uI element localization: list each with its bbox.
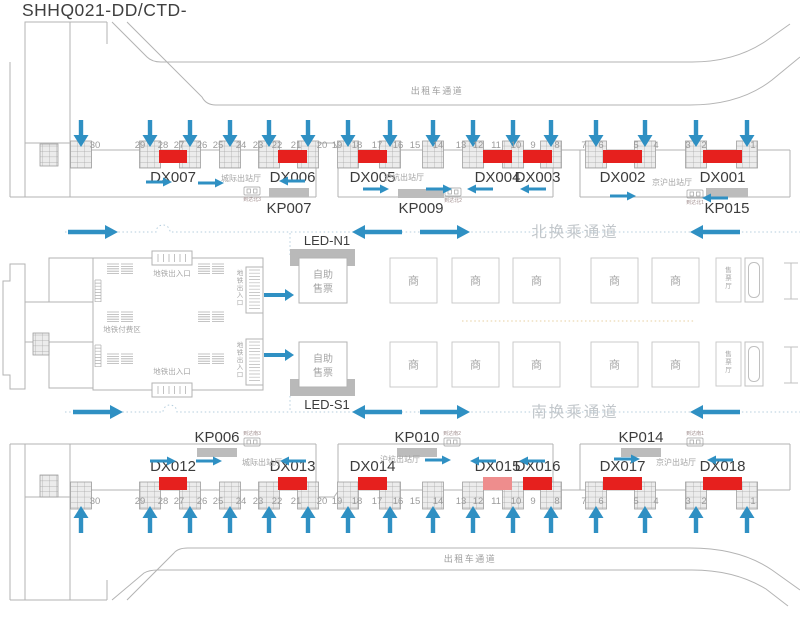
kp-panel-KP015 <box>706 188 748 197</box>
metro-exit-arrow <box>264 289 294 301</box>
char: 厅 <box>725 366 732 374</box>
panel-label-DX004: DX004 <box>475 169 521 186</box>
kp-label-KP010: KP010 <box>394 429 439 446</box>
arrow-stem <box>306 517 310 533</box>
up-arrow <box>466 506 481 533</box>
gate-number-top: 22 <box>272 140 283 151</box>
exit-hall-label: 沪杭出站厅 <box>380 454 420 464</box>
arrow-stem <box>79 517 83 533</box>
arrow-stem <box>431 120 435 136</box>
arrow-stem <box>420 410 457 415</box>
ad-panel-DX016 <box>523 477 552 490</box>
taxi-lane-top-inner <box>127 22 800 105</box>
led-s1-label: LED-S1 <box>304 397 350 412</box>
ladder-hatch <box>95 280 101 302</box>
gate-number-top: 30 <box>90 140 101 151</box>
gate-number-top: 26 <box>197 140 208 151</box>
gate-number-bottom: 20 <box>317 496 328 507</box>
char: 口 <box>237 371 244 379</box>
gate-number-bottom: 12 <box>473 496 484 507</box>
gate-number-top: 13 <box>456 140 467 151</box>
kp-label-KP007: KP007 <box>266 200 311 217</box>
metro-side-box-lower <box>246 339 263 385</box>
up-arrow <box>740 506 755 533</box>
arrow-stem <box>703 230 740 235</box>
gate-number-bottom: 7 <box>581 496 586 507</box>
gate-number-bottom: 22 <box>272 496 283 507</box>
arrow-stem <box>346 517 350 533</box>
left-exit-structure <box>10 444 107 600</box>
gate-number-bottom: 9 <box>530 496 535 507</box>
ad-panel-DX014 <box>358 477 387 490</box>
arrival-label: 到达南3 <box>243 430 261 437</box>
gate-number-top: 20 <box>317 140 328 151</box>
escalator-box-row1 <box>745 258 763 302</box>
arrival-label: 到达南2 <box>443 430 461 437</box>
up-arrow <box>506 506 521 533</box>
arrow-stem <box>511 120 515 136</box>
up-arrow <box>143 506 158 533</box>
passage-arrow <box>690 225 740 239</box>
arrow-stem <box>148 120 152 136</box>
metro-side-box-upper <box>246 267 263 313</box>
gate-number-bottom: 29 <box>135 496 146 507</box>
arrow-stem <box>79 120 83 136</box>
taxi-lane-bottom-outer <box>112 570 788 606</box>
arrow-head <box>690 405 703 419</box>
led-n1-label: LED-N1 <box>304 233 350 248</box>
up-arrow <box>383 506 398 533</box>
arrow-head <box>110 405 123 419</box>
passage-arrow <box>420 405 470 419</box>
shop-label: 商 <box>670 358 681 372</box>
gate-number-top: 5 <box>633 140 638 151</box>
arrow-head <box>213 457 222 466</box>
exit-hall-label: 城际出站厅 <box>221 173 261 183</box>
char: 入 <box>237 292 244 299</box>
gate-number-top: 8 <box>554 140 559 151</box>
ticket-hall-label: 售票厅 <box>725 265 732 290</box>
shop-label: 商 <box>470 358 481 372</box>
arrow-head <box>457 225 470 239</box>
north-passage-label: 北换乘通道 <box>531 223 619 241</box>
char: 售 <box>725 265 732 274</box>
char: 入 <box>237 364 244 371</box>
char: 铁 <box>237 275 244 284</box>
arrow-stem <box>716 459 733 462</box>
escalator-hatch <box>107 354 133 364</box>
ladder-hatch <box>95 345 101 367</box>
gate-number-top: 3 <box>685 140 690 151</box>
gate-number-top: 27 <box>174 140 185 151</box>
gate-number-top: 29 <box>135 140 146 151</box>
gate-number-top: 6 <box>598 140 603 151</box>
exit-hall-label: 京沪出站厅 <box>652 177 692 187</box>
arrow-head <box>457 405 470 419</box>
gate-number-top: 19 <box>332 140 343 151</box>
flow-arrow <box>196 457 222 466</box>
exit-hall-label: 沪杭出站厅 <box>384 172 424 182</box>
char: 票 <box>725 358 732 366</box>
gate-number-bottom: 6 <box>598 496 603 507</box>
arrow-stem <box>614 458 631 461</box>
shop-label: 商 <box>470 274 481 288</box>
ad-panel-DX005 <box>358 150 387 163</box>
gate-number-bottom: 30 <box>90 496 101 507</box>
arrow-head <box>105 225 118 239</box>
gate-number-bottom: 28 <box>158 496 169 507</box>
up-arrow <box>689 506 704 533</box>
ad-panel-DX003 <box>523 150 552 163</box>
metro-entrance-top-label: 地铁出入口 <box>153 268 191 278</box>
arrow-head <box>352 225 365 239</box>
arrow-stem <box>146 181 163 184</box>
char: 出 <box>237 355 244 364</box>
exit-hall-label: 京沪出站厅 <box>656 457 696 467</box>
metro-entrance-side-label: 地铁出入口 <box>237 340 244 379</box>
passage-arrow <box>73 405 123 419</box>
arrow-stem <box>643 120 647 136</box>
passage-arrow <box>352 405 402 419</box>
arrow-stem <box>264 353 285 357</box>
gate-number-bottom: 5 <box>633 496 638 507</box>
char: 口 <box>237 299 244 307</box>
gate-number-bottom: 15 <box>410 496 421 507</box>
gate-number-top: 28 <box>158 140 169 151</box>
kp-panel-KP014 <box>621 448 661 457</box>
selfservice-south-line2: 售票 <box>313 366 333 379</box>
gate-number-top: 11 <box>491 140 501 151</box>
pillar <box>71 482 92 509</box>
arrow-stem <box>388 517 392 533</box>
up-arrow <box>589 506 604 533</box>
gate-number-top: 7 <box>581 140 586 151</box>
arrow-stem <box>365 410 402 415</box>
escalator-hatch <box>107 264 133 274</box>
gate-number-top: 23 <box>253 140 264 151</box>
arrival-point-icon <box>444 438 460 446</box>
arrow-head <box>627 192 636 201</box>
ad-panel-DX004 <box>483 150 512 163</box>
selfservice-north-line2: 售票 <box>313 282 333 295</box>
arrow-stem <box>549 517 553 533</box>
kp-label-KP006: KP006 <box>194 429 239 446</box>
arrow-stem <box>511 517 515 533</box>
gate-number-bottom: 16 <box>393 496 404 507</box>
gate-number-top: 15 <box>410 140 421 151</box>
arrow-stem <box>388 120 392 136</box>
gate-number-bottom: 1 <box>750 496 755 507</box>
arrow-stem <box>549 120 553 136</box>
ad-panel-DX018 <box>703 477 742 490</box>
arrow-stem <box>346 120 350 136</box>
gate-number-bottom: 10 <box>511 496 522 507</box>
up-arrow <box>183 506 198 533</box>
ad-panel-DX013 <box>278 477 307 490</box>
arrow-stem <box>198 182 215 185</box>
arrival-label: 到达南1 <box>686 430 704 437</box>
arrow-stem <box>643 517 647 533</box>
gate-number-bottom: 27 <box>174 496 185 507</box>
arrow-stem <box>73 410 110 415</box>
arrow-stem <box>267 120 271 136</box>
arrow-stem <box>425 459 442 462</box>
station-floorplan: 3030292928282727262625252424232322222121… <box>0 0 800 617</box>
gate-number-top: 24 <box>236 140 247 151</box>
arrow-head <box>690 225 703 239</box>
arrow-stem <box>148 517 152 533</box>
up-arrow <box>638 506 653 533</box>
arrow-stem <box>188 120 192 136</box>
metro-entrance-bottom-label: 地铁出入口 <box>153 366 191 376</box>
gate-number-bottom: 8 <box>554 496 559 507</box>
ad-panel-DX002 <box>603 150 642 163</box>
right-edge-structures <box>784 263 798 383</box>
metro-room-upper <box>49 258 93 302</box>
ad-panel-DX017 <box>603 477 642 490</box>
up-arrow <box>544 506 559 533</box>
metro-exit-arrow <box>264 349 294 361</box>
ticket-hall-label: 售票厅 <box>725 349 732 374</box>
arrow-stem <box>479 460 496 463</box>
arrow-stem <box>610 195 627 198</box>
panel-label-DX003: DX003 <box>515 169 561 186</box>
ad-panel-DX007 <box>159 150 187 163</box>
up-arrow <box>301 506 316 533</box>
up-arrow <box>426 506 441 533</box>
gate-number-bottom: 14 <box>433 496 444 507</box>
gate-number-bottom: 24 <box>236 496 247 507</box>
arrival-point-icon <box>244 438 260 446</box>
arrow-stem <box>476 188 493 191</box>
gate-number-top: 18 <box>352 140 363 151</box>
gate-number-top: 12 <box>473 140 484 151</box>
arrow-head <box>442 456 451 465</box>
gate-number-top: 10 <box>511 140 522 151</box>
ad-panel-DX015 <box>483 477 512 490</box>
shop-label: 商 <box>408 274 419 288</box>
metro-paid-area-label: 地铁付费区 <box>103 324 141 334</box>
panel-label-DX006: DX006 <box>270 169 316 186</box>
char: 出 <box>237 283 244 292</box>
up-arrow <box>341 506 356 533</box>
arrival-label: 到达北3 <box>243 196 261 203</box>
shop-label: 商 <box>531 274 542 288</box>
passage-arrow <box>352 225 402 239</box>
arrow-stem <box>150 460 167 463</box>
gate-number-bottom: 11 <box>491 496 501 507</box>
kp-label-KP014: KP014 <box>618 429 663 446</box>
arrow-stem <box>471 120 475 136</box>
panel-label-DX001: DX001 <box>700 169 746 186</box>
arrow-head <box>352 405 365 419</box>
arrow-stem <box>188 517 192 533</box>
passage-arrow <box>420 225 470 239</box>
kp-label-KP009: KP009 <box>398 200 443 217</box>
char: 售 <box>725 349 732 358</box>
arrival-label: 到达北2 <box>444 197 462 204</box>
escalator-hatch <box>198 312 224 322</box>
shop-label: 商 <box>531 358 542 372</box>
arrow-stem <box>711 197 728 200</box>
char: 地 <box>237 268 244 277</box>
passage-arrow <box>68 225 118 239</box>
kp-label-KP015: KP015 <box>704 200 749 217</box>
selfservice-north-line1: 自助 <box>313 268 333 281</box>
taxi-lane-bottom-label: 出租车通道 <box>444 553 497 564</box>
gate-number-top: 21 <box>291 140 302 151</box>
gate-number-bottom: 17 <box>372 496 383 507</box>
char: 厅 <box>725 282 732 290</box>
arrival-label: 到达北1 <box>686 199 704 206</box>
gate-number-top: 17 <box>372 140 383 151</box>
arrow-stem <box>694 517 698 533</box>
arrow-stem <box>288 180 305 183</box>
gate-number-top: 9 <box>530 140 535 151</box>
arrow-stem <box>745 517 749 533</box>
kp-panel-KP006 <box>197 448 237 457</box>
arrow-stem <box>426 188 443 191</box>
ad-panel-DX006 <box>278 150 307 163</box>
arrow-head <box>285 349 294 361</box>
kp-panel-KP007 <box>269 188 309 197</box>
arrow-stem <box>289 460 306 463</box>
gate-number-top: 2 <box>701 140 706 151</box>
arrow-stem <box>264 293 285 297</box>
gate-number-bottom: 21 <box>291 496 302 507</box>
escalator-hatch <box>107 312 133 322</box>
arrow-stem <box>363 188 380 191</box>
escalator-hatch <box>198 264 224 274</box>
arrow-stem <box>471 517 475 533</box>
char: 铁 <box>237 347 244 356</box>
gate-number-bottom: 18 <box>352 496 363 507</box>
shop-label: 商 <box>670 274 681 288</box>
up-arrow <box>262 506 277 533</box>
metro-room-lower <box>49 342 93 388</box>
arrow-stem <box>68 230 105 235</box>
exit-hall-label: 城际出站厅 <box>242 457 282 467</box>
char: 票 <box>725 274 732 282</box>
floorplan-svg: 3030292928282727262625252424232322222121… <box>0 0 800 617</box>
flow-arrow <box>610 192 636 201</box>
panel-label-DX002: DX002 <box>600 169 646 186</box>
up-arrow <box>74 506 89 533</box>
drawing-title: SHHQ021-DD/CTD- <box>22 0 187 20</box>
gate-number-bottom: 3 <box>685 496 690 507</box>
gate-number-top: 16 <box>393 140 404 151</box>
gate-number-bottom: 26 <box>197 496 208 507</box>
arrow-stem <box>594 120 598 136</box>
arrow-stem <box>594 517 598 533</box>
char: 地 <box>237 340 244 349</box>
shop-label: 商 <box>408 358 419 372</box>
gate-number-top: 14 <box>433 140 444 151</box>
arrow-stem <box>529 188 546 191</box>
arrow-stem <box>703 410 740 415</box>
stairs-metro <box>33 333 49 355</box>
stairs-top-left <box>40 144 58 166</box>
arrow-stem <box>196 460 213 463</box>
gate-number-bottom: 2 <box>701 496 706 507</box>
taxi-lane-top-label: 出租车通道 <box>411 85 464 96</box>
arrival-point-icon <box>244 187 260 195</box>
gate-number-top: 25 <box>213 140 224 151</box>
gate-number-bottom: 19 <box>332 496 343 507</box>
arrow-stem <box>267 517 271 533</box>
arrival-point-icon <box>687 438 703 446</box>
gate-number-bottom: 23 <box>253 496 264 507</box>
arrow-stem <box>228 517 232 533</box>
arrow-stem <box>528 460 545 463</box>
gate-number-top: 4 <box>653 140 658 151</box>
arrow-head <box>285 289 294 301</box>
arrow-stem <box>694 120 698 136</box>
shop-label: 商 <box>609 358 620 372</box>
gate-number-bottom: 13 <box>456 496 467 507</box>
passage-arrow <box>690 405 740 419</box>
taxi-lane-top-outer <box>112 22 790 62</box>
arrow-stem <box>306 120 310 136</box>
up-arrow <box>223 506 238 533</box>
stairs-bottom-left <box>40 475 58 497</box>
ad-panel-DX012 <box>159 477 187 490</box>
shop-label: 商 <box>609 274 620 288</box>
arrow-head <box>467 185 476 194</box>
arrow-stem <box>365 230 402 235</box>
metro-platform <box>3 264 25 389</box>
gate-number-bottom: 4 <box>653 496 658 507</box>
arrow-stem <box>431 517 435 533</box>
escalator-box-row2 <box>745 342 763 386</box>
gate-number-top: 1 <box>750 140 755 151</box>
ad-panel-DX001 <box>703 150 742 163</box>
south-passage-label: 南换乘通道 <box>531 403 619 421</box>
gate-number-bottom: 25 <box>213 496 224 507</box>
metro-entrance-side-label: 地铁出入口 <box>237 268 244 307</box>
escalator-hatch <box>198 354 224 364</box>
arrow-stem <box>745 120 749 136</box>
panel-label-DX017: DX017 <box>600 458 646 475</box>
arrow-stem <box>228 120 232 136</box>
arrow-head <box>443 185 452 194</box>
arrow-stem <box>420 230 457 235</box>
selfservice-south-line1: 自助 <box>313 352 333 365</box>
